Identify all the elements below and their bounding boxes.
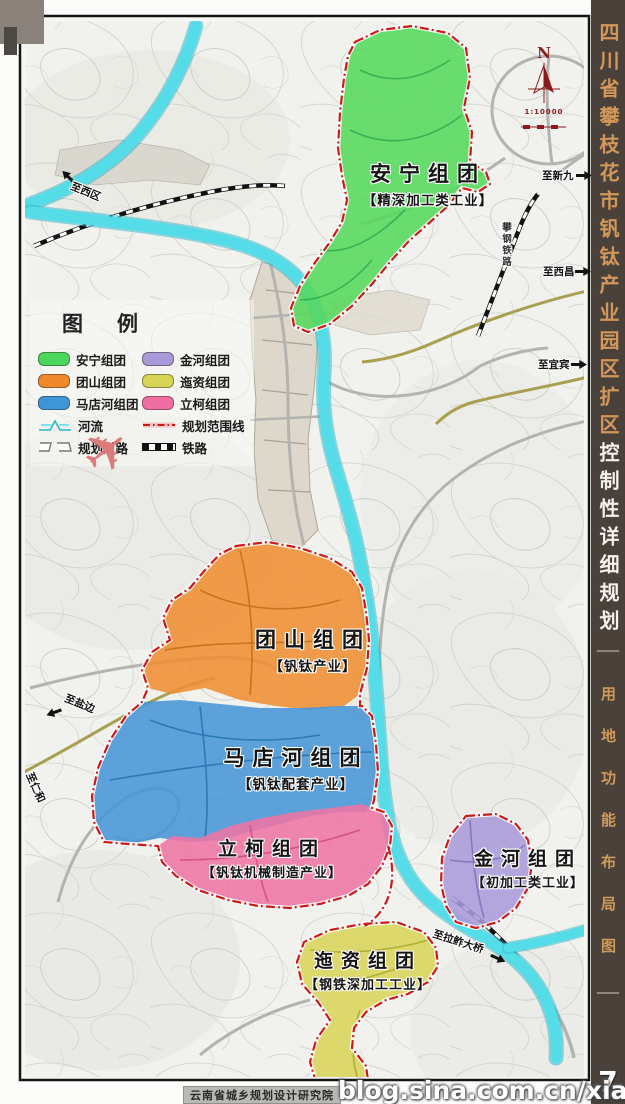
tuanshan-swatch: [38, 374, 70, 388]
agency-name: 云南省城乡规划设计研究院: [190, 1087, 334, 1103]
yizi-swatch: [142, 374, 174, 388]
zone-label-madianhe: 马店河组团 【钒钛配套产业】: [224, 742, 369, 793]
zone-label-yizi: 迤资组团 【钢铁深加工工业】: [305, 946, 431, 993]
compass-needle-icon: [527, 62, 561, 104]
map-canvas: [0, 0, 625, 1104]
sidebar-subtitle: 用地功能布局图: [591, 686, 625, 980]
legend-item-yizi: 迤资组团: [142, 370, 246, 392]
zone-label-jinhe: 金河组团 【初加工类工业】: [472, 844, 584, 891]
title-orange-part: 四川省攀枝花市钒钛产业园区扩区: [596, 22, 620, 442]
sidebar-main-title: 四川省攀枝花市钒钛产业园区扩区控制性详细规划: [591, 22, 625, 638]
zone-label-tuanshan: 团山组团 【钒钛产业】: [255, 624, 371, 675]
legend-item-madianhe: 马店河组团: [38, 392, 142, 414]
title-white-part: 控制性详细规划: [596, 442, 620, 638]
legend: 图例 安宁组团 团山组团 马店河组团: [30, 300, 254, 466]
madianhe-swatch: [38, 396, 70, 410]
direction-xichang: 至西昌: [543, 264, 575, 279]
legend-item-tuanshan: 团山组团: [38, 370, 142, 392]
scale-bar-icon: [521, 123, 567, 131]
legend-item-jinhe: 金河组团: [142, 348, 246, 370]
legend-item-railway: 铁路: [142, 436, 246, 458]
sidebar-divider: [597, 992, 619, 994]
jinhe-swatch: [142, 352, 174, 366]
planned-road-symbol-icon: [38, 440, 72, 454]
title-sidebar: 四川省攀枝花市钒钛产业园区扩区控制性详细规划 用地功能布局图 7: [591, 0, 625, 1104]
scale-text: 1:10000: [518, 108, 570, 116]
planning-map-page: 图例 安宁组团 团山组团 马店河组团: [0, 0, 625, 1104]
anning-swatch: [38, 352, 70, 366]
agency-box: 云南省城乡规划设计研究院: [183, 1086, 341, 1104]
legend-item-boundary: 规划范围线: [142, 414, 246, 436]
legend-item-anning: 安宁组团: [38, 348, 142, 370]
direction-yibin: 至宜宾: [538, 357, 570, 372]
river-symbol-icon: [38, 418, 72, 432]
boundary-symbol-icon: [142, 418, 176, 432]
like-swatch: [142, 396, 174, 410]
compass: N 1:10000: [518, 44, 570, 135]
legend-title: 图例: [62, 308, 250, 338]
label-pangang-railway: 攀钢铁路: [498, 222, 512, 268]
legend-item-like: 立柯组团: [142, 392, 246, 414]
north-label: N: [518, 44, 570, 62]
zone-label-like: 立柯组团 【钒钛机械制造产业】: [202, 834, 342, 881]
railway-symbol-icon: [142, 440, 176, 454]
sidebar-divider: [597, 650, 619, 652]
zone-label-anning: 安宁组团 【精深加工类工业】: [363, 158, 494, 209]
watermark-text: blog.sina.com.cn/xiagrui: [338, 1076, 625, 1104]
corner-tab: [4, 27, 17, 55]
direction-xinjiu: 至新九: [542, 168, 574, 183]
